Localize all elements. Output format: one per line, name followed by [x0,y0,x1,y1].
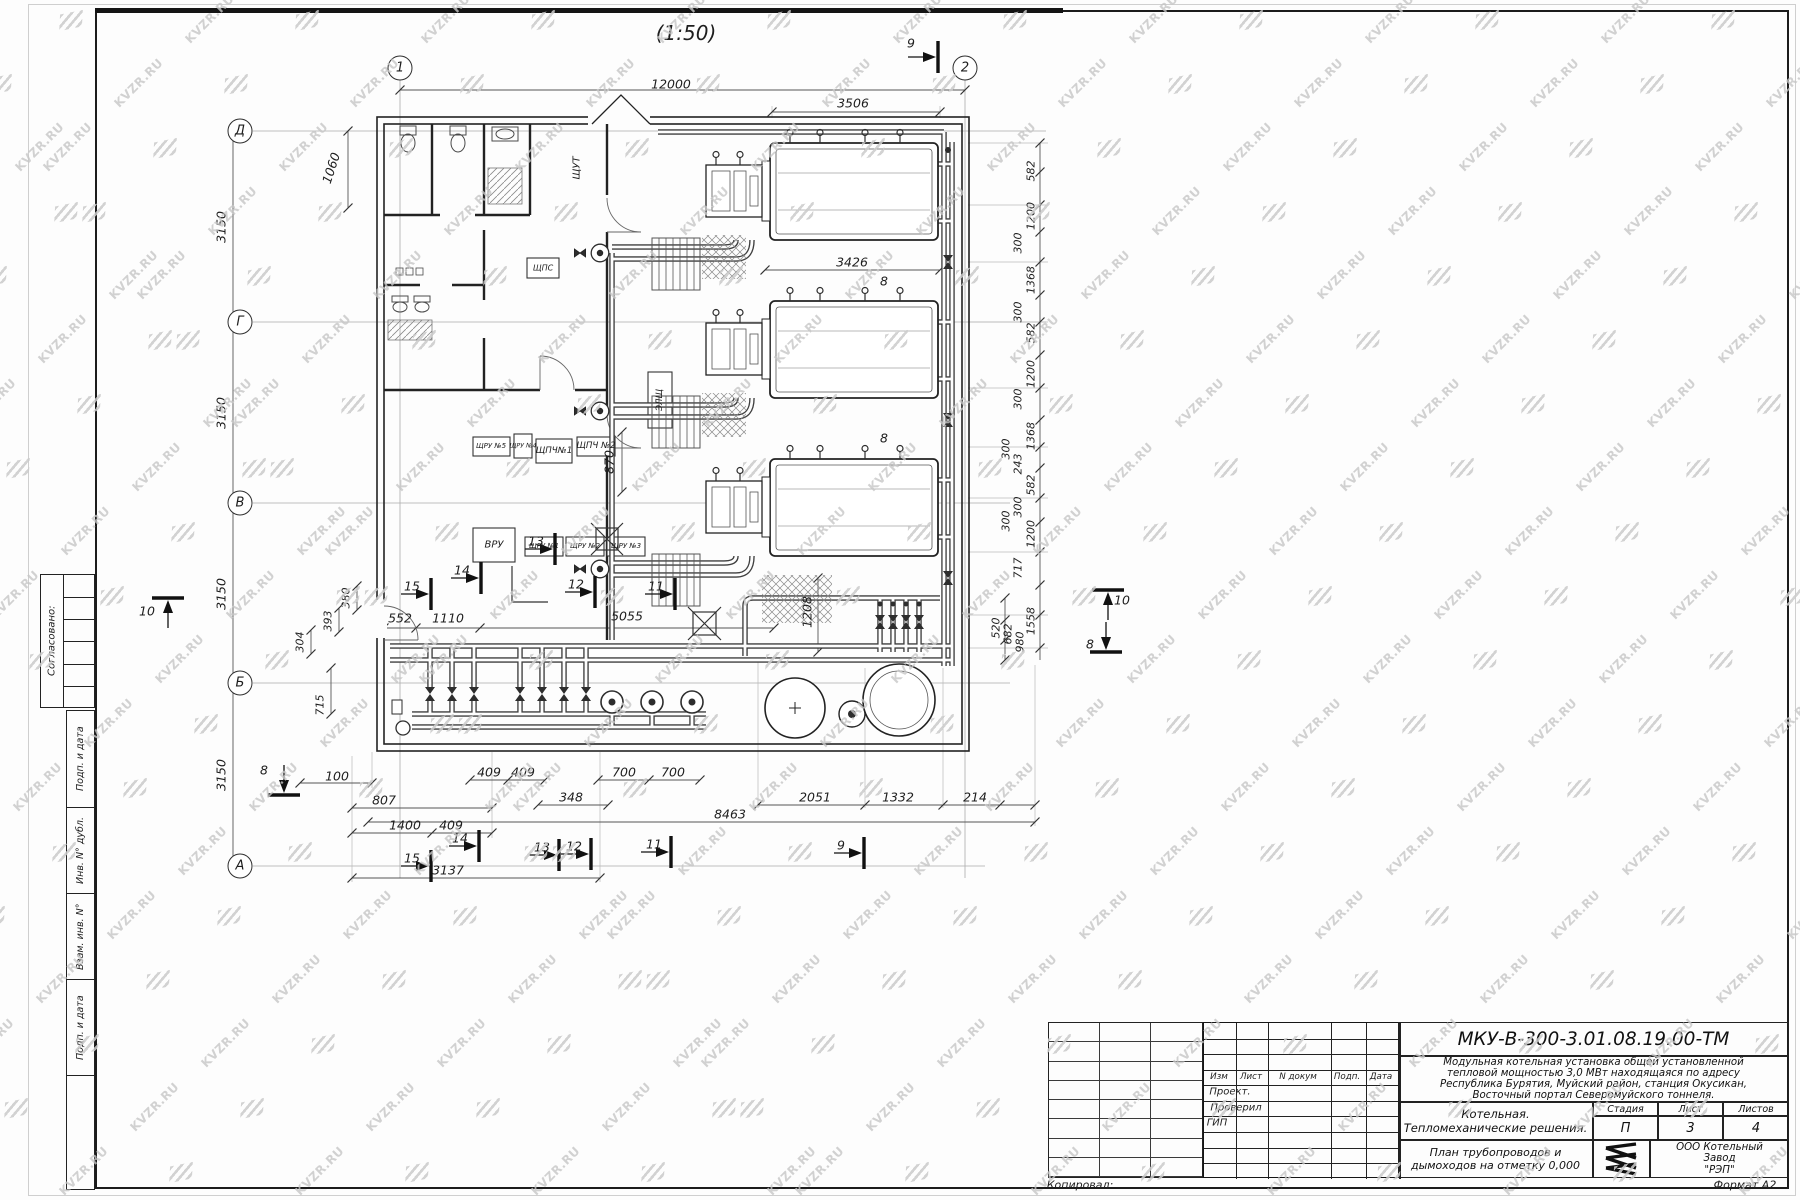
dim-3150-3: 3150 [214,578,229,610]
panel-label-shpch1: ЩПЧ№1 [536,446,573,456]
boiler-2 [574,288,938,449]
dim-12000: 12000 [651,77,691,92]
section-label-14-mid: 14 [454,563,470,578]
axis-bubble-g: Г [228,310,253,335]
tb-drawing-line2: дымоходов на отметку 0,000 [1411,1159,1580,1172]
room-label-shps: ЩПС [533,264,553,273]
dim-1332: 1332 [882,790,914,805]
section-markers [152,41,1124,882]
tb-row-proveril: Проверил [1210,1103,1261,1114]
dim-700-a: 700 [612,765,636,780]
tb-sheets-header: Листов [1723,1102,1789,1116]
dim-right-11: 582 [1025,475,1038,496]
tb-col-list: Лист [1240,1072,1262,1082]
panel-label-shpch2: ЩПЧ №2 [576,441,615,451]
dim-380: 380 [340,588,353,609]
dim-348: 348 [559,790,583,805]
approval-box: Согласовано: [40,574,95,708]
tb-drawing-line1: План трубопроводов и [1430,1146,1562,1159]
tb-drawing-title: План трубопроводов и дымоходов на отметк… [1398,1140,1593,1178]
room-label-elsh: ЭЛЩ [655,389,665,411]
dim-3150-1: 3150 [214,211,229,243]
tb-company-line1: ООО Котельный [1676,1142,1763,1154]
axis-bubble-a: А [228,854,253,879]
tb-sheets-value: 4 [1723,1116,1789,1140]
inventory-strip: Подп. и дата Инв. N° дубл. Взам. инв. N°… [66,710,95,1190]
dim-700-b: 700 [661,765,685,780]
dim-right-5: 582 [1025,323,1038,344]
axis-bubble-v: В [228,491,253,516]
dim-right-4: 300 [1012,302,1025,323]
tb-description: Модульная котельная установка общей уста… [1398,1056,1789,1102]
section-label-13-bottom: 13 [534,840,550,855]
tb-sheet-value: 3 [1658,1116,1723,1140]
dim-right-8: 1368 [1025,422,1038,450]
company-logo-icon [1602,1142,1642,1176]
strip-cell-4: Подп. и дата [67,979,94,1075]
tb-col-ndoc: N докум [1279,1072,1317,1082]
dim-right-6: 1200 [1025,360,1038,388]
dim-552: 552 [388,611,412,626]
dim-3426: 3426 [836,255,868,270]
dim-right-1: 1200 [1025,202,1038,230]
tb-col-data: Дата [1370,1072,1393,1082]
section-label-8-plan-1: 8 [880,274,888,289]
tb-object: Котельная. Тепломеханические решения. [1398,1102,1593,1140]
tb-company: ООО Котельный Завод "РЭП" [1650,1140,1789,1178]
section-label-8-right: 8 [1086,637,1094,652]
tb-col-podp: Подп. [1334,1072,1360,1082]
dim-right-15: 717 [1012,558,1025,579]
dim-3150-2: 3150 [214,397,229,429]
room-label-shut: ЩУТ [572,156,583,179]
tb-object-line2: Тепломеханические решения. [1404,1121,1587,1135]
strip-cell-3: Взам. инв. N° [67,893,94,979]
dim-3137: 3137 [432,863,464,878]
section-label-12-mid: 12 [568,577,584,592]
tb-stage-value: П [1593,1116,1658,1140]
format-label: Формат А2 [1714,1179,1777,1192]
tb-row-gip: ГИП [1207,1118,1228,1129]
tb-logo-cell [1593,1140,1650,1178]
approval-label: Согласовано: [41,575,63,707]
dim-715: 715 [314,695,327,716]
tb-desc-line4: Восточный портал Северомуйского тоннеля. [1473,1090,1715,1101]
tb-company-line2: Завод [1703,1153,1735,1165]
section-label-8-plan-2: 8 [880,431,888,446]
dim-807: 807 [372,793,396,808]
panel-label-shru1: ЩРУ №1 [529,542,559,550]
sanitary-fixtures [388,126,522,340]
axis-bubble-b: Б [228,671,253,696]
drawing-sheet: 1 2 Д Г В Б А (1:50) 12000 3506 3426 9 3… [0,0,1800,1200]
dim-right-19: 980 [1014,632,1027,653]
dim-right-0: 582 [1025,161,1038,182]
dim-409-b: 409 [511,765,535,780]
dim-right-2: 300 [1012,233,1025,254]
dim-right-14: 1200 [1025,520,1038,548]
tb-sheet-header: Лист [1658,1102,1723,1116]
section-label-10-left: 10 [139,604,155,619]
dim-1208: 1208 [800,596,815,628]
floor-plan-drawing [0,0,1800,1200]
dim-214: 214 [963,790,987,805]
dim-2051: 2051 [799,790,831,805]
electrical-panels [473,258,672,562]
dim-1400: 1400 [389,818,421,833]
tb-desc-line3: Республика Бурятия, Муйский район, станц… [1440,1079,1747,1090]
dim-3506: 3506 [837,96,869,111]
tb-col-izm: Изм [1210,1072,1228,1082]
dim-right-10: 243 [1012,454,1025,475]
strip-cell-1: Подп. и дата [67,711,94,807]
section-label-15-mid: 15 [404,579,420,594]
tb-row-proekt: Проект. [1209,1087,1250,1098]
panel-label-shru4: ЩРУ №4 [509,443,536,450]
section-label-10-right: 10 [1114,593,1130,608]
panel-label-shru5: ЩРУ №5 [476,442,506,450]
section-label-12-bottom: 12 [566,839,582,854]
section-label-14-bottom: 14 [452,831,468,846]
sheet-frame-top-edge [95,8,1063,13]
dim-right-12: 300 [1012,497,1025,518]
tb-document-code: МКУ-В-300-3.01.08.19.00-ТМ [1398,1022,1789,1056]
revision-mini-table [1048,1022,1203,1178]
section-label-11-bottom: 11 [646,837,662,852]
dim-8463: 8463 [714,807,746,822]
dim-right-7: 300 [1012,389,1025,410]
tb-desc-line1: Модульная котельная установка общей уста… [1443,1057,1744,1068]
dim-409-a: 409 [477,765,501,780]
panel-label-shru2: ЩРУ №2 [570,542,600,550]
boiler-1 [574,130,938,291]
dim-100: 100 [325,769,349,784]
section-label-11-mid: 11 [648,579,664,594]
tb-desc-line2: тепловой мощностью 3,0 МВт находящаяся п… [1447,1068,1740,1079]
section-label-9-top: 9 [907,36,915,51]
tb-stage-header: Стадия [1593,1102,1658,1116]
axis-bubble-d: Д [228,119,253,144]
axis-bubble-2: 2 [953,56,978,81]
tb-object-line1: Котельная. [1461,1107,1529,1121]
dim-304: 304 [294,632,307,653]
strip-cell-2: Инв. N° дубл. [67,807,94,893]
dim-1110: 1110 [432,611,464,626]
dim-right-3: 1368 [1025,266,1038,294]
dim-right-13: 300 [1000,511,1013,532]
dim-5055: 5055 [611,609,643,624]
section-label-9-bottom: 9 [837,838,845,853]
panel-label-shru3: ЩРУ №3 [611,542,641,550]
dim-3150-4: 3150 [214,759,229,791]
copied-by-label: Копировал: [1047,1179,1114,1192]
tb-company-line3: "РЭП" [1704,1165,1734,1177]
scale-note: (1:50) [656,21,717,45]
strip-cell-5: Инв. N° подл. [67,1075,94,1200]
section-label-8-left: 8 [260,763,268,778]
axis-bubble-1: 1 [388,56,413,81]
section-label-15-bottom: 15 [404,851,420,866]
panel-label-vru: ВРУ [485,540,504,551]
dim-870: 870 [602,450,617,474]
dim-393: 393 [322,611,335,632]
